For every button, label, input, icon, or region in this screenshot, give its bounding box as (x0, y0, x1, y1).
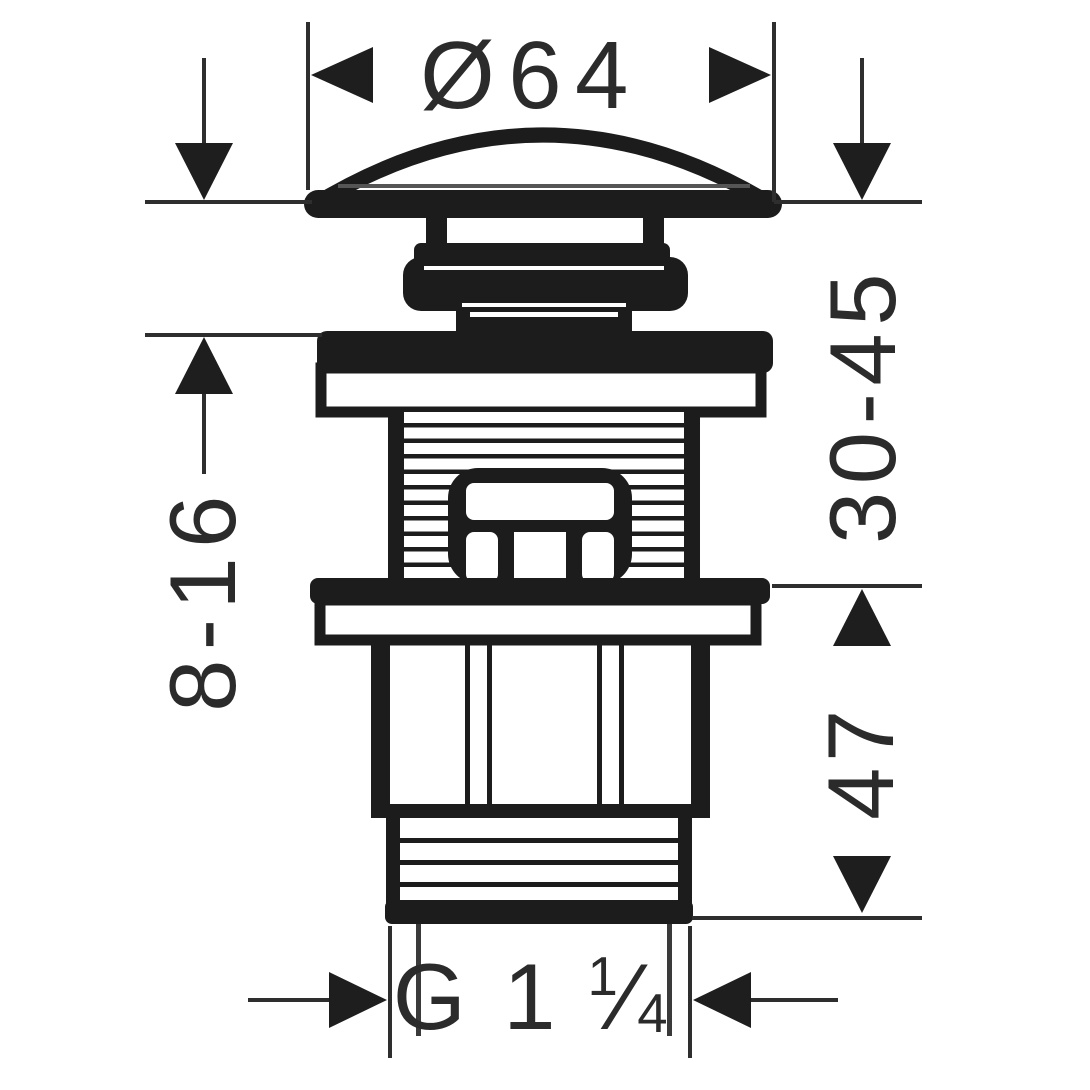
arrow-down-icon (833, 856, 891, 913)
dim-lower-height (692, 856, 922, 918)
dim-label-lower-height: 47 (806, 662, 916, 862)
dim-label-clamp-thickness-range: 8-16 (148, 429, 258, 769)
arrow-up-icon (175, 337, 233, 394)
technical-drawing-canvas: Ø64 8-16 30-45 47 G 11⁄4 (0, 0, 1090, 1090)
arrow-down-icon (833, 143, 891, 200)
overflow-window (448, 468, 632, 584)
dim-label-install-depth-range: 30-45 (808, 225, 918, 585)
dim-label-outlet-thread: G 11⁄4 (323, 942, 743, 1052)
outlet-thread (385, 812, 693, 924)
thread-size-prefix: G 1 (393, 950, 561, 1044)
dim-clamp-range (145, 58, 322, 474)
fraction-numerator: 1 (587, 950, 623, 1005)
nut-body (371, 640, 710, 818)
drain-plug-fixture (304, 135, 782, 1036)
cap-dome (304, 135, 782, 218)
fraction-denominator: 4 (637, 987, 673, 1042)
top-flange (317, 331, 773, 412)
dim-label-cap-diameter: Ø64 (331, 26, 731, 126)
arrow-down-icon (175, 143, 233, 200)
thread-size-fraction: 1⁄4 (587, 950, 673, 1044)
bottom-flange (310, 578, 770, 640)
arrow-up-icon (833, 589, 891, 646)
cap-rim (304, 190, 782, 218)
seal-collar (403, 243, 688, 338)
